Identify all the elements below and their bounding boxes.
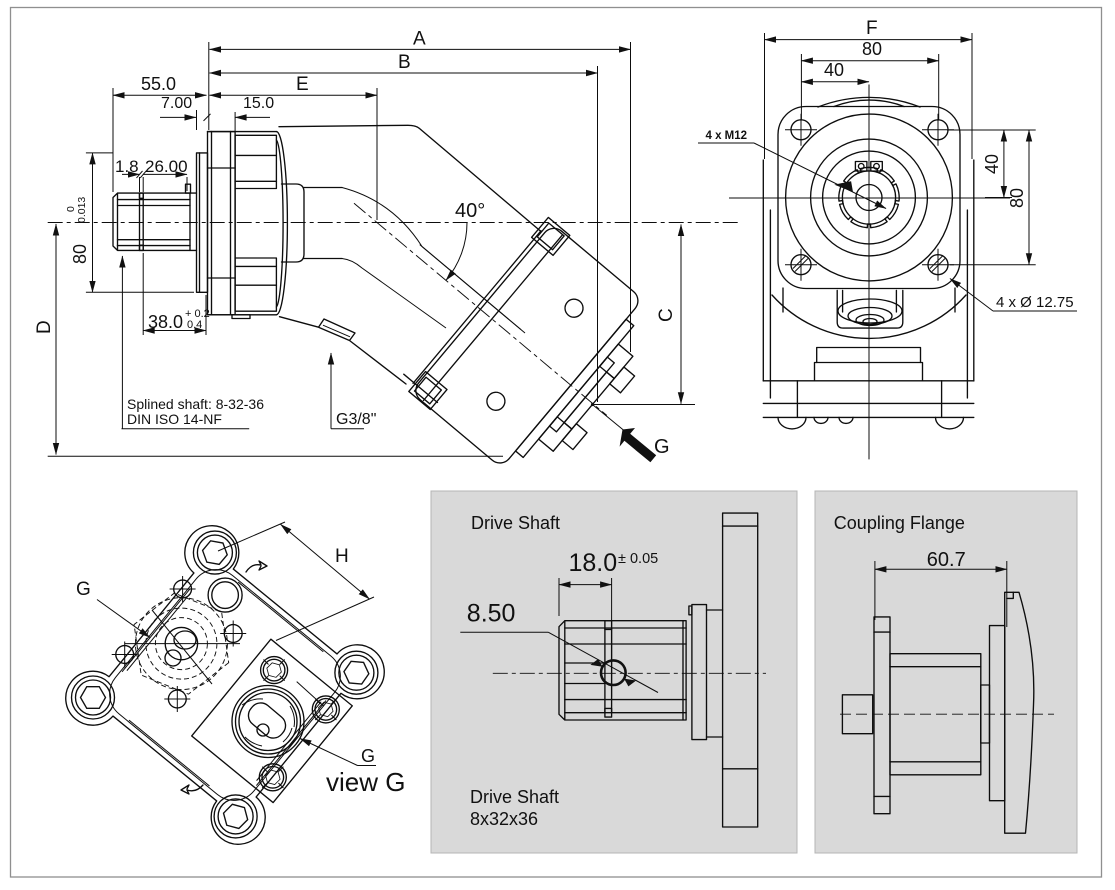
svg-text:G: G (76, 579, 91, 600)
svg-text:Drive Shaft: Drive Shaft (470, 787, 559, 807)
svg-text:G: G (654, 436, 670, 458)
svg-text:G: G (361, 746, 375, 766)
svg-text:0.4: 0.4 (187, 319, 202, 331)
svg-text:60.7: 60.7 (927, 549, 966, 571)
svg-text:view G: view G (326, 767, 405, 797)
svg-text:4 x M12: 4 x M12 (706, 130, 748, 142)
svg-text:15.0: 15.0 (243, 95, 274, 112)
svg-text:40: 40 (824, 60, 844, 80)
svg-text:55.0: 55.0 (141, 74, 176, 94)
svg-text:Splined shaft: 8-32-36: Splined shaft: 8-32-36 (127, 396, 264, 412)
svg-text:Drive Shaft: Drive Shaft (471, 513, 560, 533)
svg-text:0.013: 0.013 (76, 197, 88, 223)
svg-text:38.0: 38.0 (148, 312, 183, 332)
svg-text:E: E (296, 74, 309, 95)
svg-text:4 x Ø 12.75: 4 x Ø 12.75 (996, 294, 1074, 311)
svg-text:80: 80 (1007, 188, 1027, 208)
svg-text:8x32x36: 8x32x36 (470, 809, 538, 829)
svg-text:7.00: 7.00 (161, 95, 192, 112)
svg-text:C: C (656, 308, 677, 322)
svg-text:80: 80 (862, 39, 882, 59)
svg-text:D: D (34, 320, 55, 334)
svg-text:40: 40 (982, 154, 1002, 174)
svg-text:± 0.05: ± 0.05 (618, 551, 658, 567)
svg-text:1.8: 1.8 (115, 157, 139, 176)
svg-text:18.0: 18.0 (569, 549, 618, 577)
svg-text:DIN ISO 14-NF: DIN ISO 14-NF (127, 411, 222, 427)
svg-text:26.00: 26.00 (145, 157, 188, 176)
svg-text:G3/8": G3/8" (336, 411, 376, 428)
svg-text:F: F (866, 18, 878, 39)
svg-text:8.50: 8.50 (467, 600, 516, 628)
svg-text:80: 80 (70, 244, 90, 264)
svg-text:A: A (413, 29, 426, 50)
svg-text:B: B (398, 52, 411, 73)
svg-text:H: H (335, 546, 349, 567)
svg-text:40°: 40° (455, 200, 485, 222)
svg-text:Coupling Flange: Coupling Flange (834, 513, 965, 533)
